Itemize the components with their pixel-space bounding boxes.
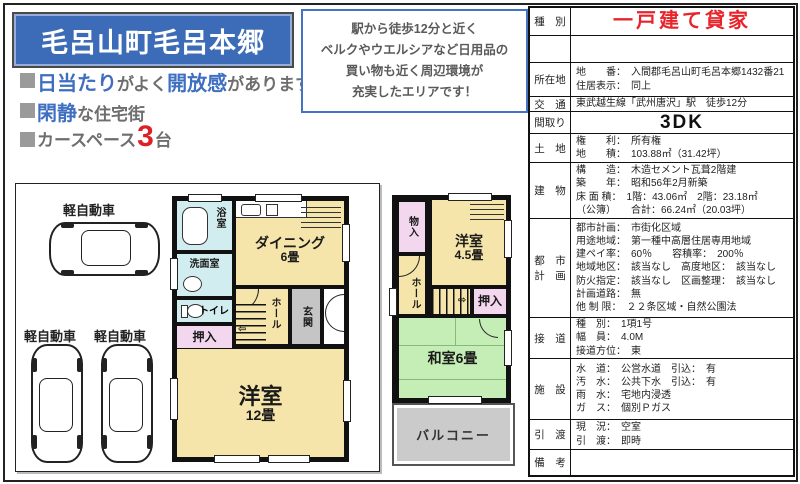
- building-line: （公簿） 合計：66.24㎡（20.03坪）: [576, 204, 788, 217]
- building-line: 構 造： 木造セメント瓦葺2階建: [576, 164, 788, 177]
- feature-text: 台: [155, 126, 172, 151]
- window: [342, 224, 350, 262]
- road-line: 接道方位： 東: [576, 345, 788, 358]
- spec-label: 引 渡: [534, 427, 566, 442]
- spec-row-type: 種 別 一戸建て貸家: [530, 8, 793, 35]
- balcony: バルコニー: [392, 403, 515, 466]
- property-flyer: 毛呂山町毛呂本郷 日当たり がよく 開放感 があります 閑静 な住宅街 カースペ…: [0, 0, 800, 484]
- room-toilet: トイレ: [177, 300, 232, 322]
- spec-table: 種 別 一戸建て貸家 所在地 地 番： 入間郡毛呂山町毛呂本郷1432番21 住…: [528, 6, 795, 477]
- floorplan-1f: 浴室 洗面室 トイレ 押入 ダイニング 6畳 ホール ⇦ 玄関: [172, 196, 349, 462]
- feature-sunlight: 日当たり がよく 開放感 があります: [20, 67, 312, 93]
- car-label: 軽自動車: [63, 200, 115, 219]
- city-line: 計画道路： 無: [576, 288, 788, 301]
- spec-label: 種 別: [534, 14, 566, 29]
- spec-row-handover: 引 渡 現 況： 空室 引 渡： 即時: [530, 419, 793, 449]
- kei-car-icon: [49, 222, 160, 276]
- address-line: 住居表示： 同上: [576, 80, 788, 93]
- callout-line: 充実したエリアです！: [303, 82, 526, 103]
- spec-row-madori: 間取り 3DK: [530, 111, 793, 133]
- spec-label: 施 設: [534, 382, 566, 397]
- bullet-square-icon: [20, 132, 35, 147]
- floorplan-2f: 物入 洋室 4.5畳 ホール ⇨ 押入 和室6畳: [392, 195, 511, 403]
- window: [504, 220, 512, 258]
- room-western-12: 洋室 12畳: [177, 349, 344, 457]
- feature-highlight: 閑静: [37, 97, 77, 126]
- feature-highlight: 日当たり: [37, 67, 117, 96]
- spec-label: 建 物: [534, 183, 566, 198]
- road-line: 幅 員： 4.0M: [576, 331, 788, 344]
- access-value: 東武越生線「武州唐沢」駅 徒歩12分: [576, 97, 788, 110]
- window: [170, 378, 178, 420]
- address-line: 地 番： 入間郡毛呂山町毛呂本郷1432番21: [576, 66, 788, 79]
- room-western-45: 洋室 4.5畳: [432, 200, 506, 285]
- spec-label: 所在地: [534, 72, 566, 87]
- window: [448, 193, 492, 201]
- car-label: 軽自動車: [94, 326, 146, 345]
- handover-line: 現 況： 空室: [576, 421, 788, 434]
- spec-label: 都 市: [534, 253, 566, 268]
- notes-value: [571, 450, 793, 475]
- spec-label: 交 通: [534, 97, 566, 112]
- window: [428, 396, 482, 404]
- spec-row-access: 交 通 東武越生線「武州唐沢」駅 徒歩12分: [530, 96, 793, 111]
- kei-car-icon: [31, 344, 83, 463]
- callout-line: 駅から徒歩12分と近く: [303, 19, 526, 40]
- handover-line: 引 渡： 即時: [576, 435, 788, 448]
- spec-label: 備 考: [534, 455, 566, 470]
- spec-row-road: 接 道 種 別： 1項1号 幅 員： 4.0M 接道方位： 東: [530, 317, 793, 358]
- feature-highlight: 開放感: [167, 67, 227, 96]
- room-hall-2f: ホール: [399, 256, 425, 314]
- window: [214, 455, 260, 463]
- feature-text: カースペース: [37, 126, 136, 151]
- land-line: 権 利： 所有権: [576, 135, 788, 148]
- property-type-value: 一戸建て貸家: [571, 8, 793, 35]
- location-callout: 駅から徒歩12分と近く ベルクやウエルシアなど日用品の 買い物も近く周辺環境が …: [301, 9, 528, 113]
- feature-carspace: カースペース 3 台: [20, 126, 172, 152]
- property-title: 毛呂山町毛呂本郷: [41, 21, 265, 60]
- spec-row-building: 建 物 構 造： 木造セメント瓦葺2階建 築 年： 昭和56年2月新築 床 面 …: [530, 162, 793, 218]
- city-line: 他 制 限： ２２条区域・自然公園法: [576, 301, 788, 314]
- spec-row-notes: 備 考: [530, 449, 793, 475]
- spec-label: 間取り: [534, 115, 566, 130]
- building-line: 築 年： 昭和56年2月新築: [576, 177, 788, 190]
- facility-line: 汚 水： 公共下水 引込： 有: [576, 376, 788, 389]
- kei-car-icon: [101, 344, 153, 463]
- room-dining: ダイニング 6畳: [236, 201, 344, 285]
- property-title-banner: 毛呂山町毛呂本郷: [12, 12, 294, 68]
- callout-line: ベルクやウエルシアなど日用品の: [303, 40, 526, 61]
- feature-text: な住宅街: [77, 100, 145, 125]
- room-storage-2f: 物入: [399, 202, 425, 252]
- window: [268, 455, 310, 463]
- room-bath: 浴室: [177, 201, 232, 250]
- spec-label: 土 地: [534, 141, 566, 156]
- stairs-arrow: ⇦: [238, 324, 246, 335]
- road-line: 種 別： 1項1号: [576, 318, 788, 331]
- city-line: 都市計画： 市街化区域: [576, 222, 788, 235]
- city-line: 防火指定： 該当なし 区画整理： 該当なし: [576, 275, 788, 288]
- bullet-square-icon: [20, 73, 35, 88]
- room-closet-1f: 押入: [177, 326, 232, 348]
- madori-value: 3DK: [571, 112, 793, 133]
- spec-row-facilities: 施 設 水 道： 公営水道 引込： 有 汚 水： 公共下水 引込： 有 雨 水：…: [530, 358, 793, 419]
- feature-text: がよく: [117, 70, 167, 95]
- room-closet-2f: 押入: [474, 289, 506, 314]
- spec-row-city-planning: 都 市 計 画 都市計画： 市街化区域 用途地域： 第一種中高層住居専用地域 建…: [530, 218, 793, 317]
- feature-text: があります: [227, 70, 312, 95]
- window: [504, 330, 512, 366]
- bullet-square-icon: [20, 103, 35, 118]
- room-genkan: 玄関: [292, 289, 320, 344]
- spec-row-land: 土 地 権 利： 所有権 地 積： 103.88㎡（31.42坪）: [530, 133, 793, 162]
- spec-label: 計 画: [534, 268, 566, 283]
- stairs-arrow: ⇨: [458, 295, 466, 306]
- city-line: 建ペイ率： 60％ 容積率： 200％: [576, 248, 788, 261]
- facility-line: ガ ス： 個別Ｐガス: [576, 402, 788, 415]
- window: [389, 288, 397, 316]
- building-line: 床 面 積： 1階：43.06㎡ 2階：23.18㎡: [576, 191, 788, 204]
- facility-line: 水 道： 公営水道 引込： 有: [576, 363, 788, 376]
- spec-row-empty: [530, 35, 793, 62]
- window: [255, 194, 302, 202]
- spec-label: 接 道: [534, 331, 566, 346]
- room-washroom: 洗面室: [177, 254, 232, 296]
- callout-line: 買い物も近く周辺環境が: [303, 61, 526, 82]
- facility-line: 雨 水： 宅地内浸透: [576, 389, 788, 402]
- city-line: 用途地域： 第一種中高層住居専用地域: [576, 235, 788, 248]
- window: [188, 194, 222, 202]
- window: [343, 380, 351, 422]
- feature-quiet: 閑静 な住宅街: [20, 97, 145, 123]
- city-line: 地域地区： 該当なし 高度地区： 該当なし: [576, 261, 788, 274]
- window: [170, 258, 178, 290]
- land-line: 地 積： 103.88㎡（31.42坪）: [576, 148, 788, 161]
- carspace-count: 3: [136, 126, 155, 148]
- entrance-porch: [324, 289, 344, 344]
- room-japanese-6: 和室6畳: [399, 318, 506, 398]
- car-label: 軽自動車: [24, 326, 76, 345]
- spec-row-address: 所在地 地 番： 入間郡毛呂山町毛呂本郷1432番21 住居表示： 同上: [530, 62, 793, 96]
